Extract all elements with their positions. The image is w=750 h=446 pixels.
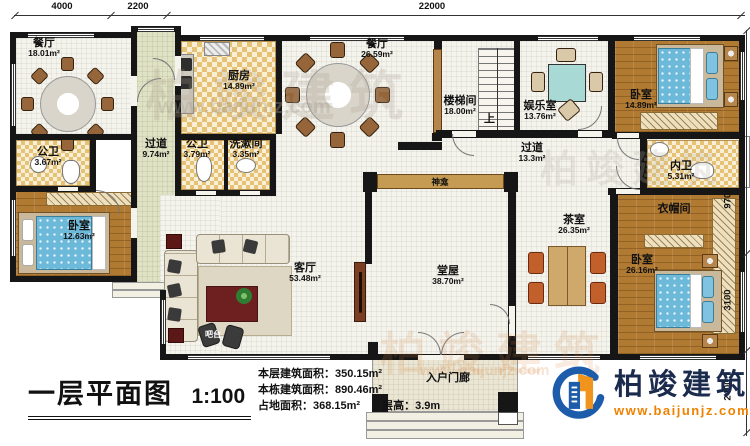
wall [175, 190, 276, 196]
stat-row: 占地面积：368.15m²层高：3.9m [258, 398, 440, 414]
wall [434, 35, 442, 49]
window [200, 36, 264, 41]
porch-pillar [498, 392, 518, 412]
sofa-cushion [167, 259, 182, 274]
room-label-livingroom: 客厅53.48m² [289, 262, 321, 284]
bed-duvet [690, 48, 704, 104]
doorway [578, 131, 602, 137]
toilet-icon [196, 156, 212, 182]
room-area: 5.31m² [668, 172, 695, 182]
room-area: 26.35m² [558, 226, 590, 236]
dimension-label: 3100 [723, 289, 734, 310]
logo: 柏竣建筑 www.baijunjz.com [552, 366, 750, 422]
room-area: 3.67m² [35, 158, 62, 168]
watermark-text: 柏竣建筑 [145, 52, 417, 131]
sink-icon [236, 158, 256, 173]
bed-pillow [702, 276, 714, 298]
room-label-bath-2: 公卫3.79m² [184, 138, 211, 160]
chair [330, 132, 345, 148]
chair [61, 57, 74, 71]
doorway [240, 191, 260, 195]
stat-value: 890.46m² [335, 384, 382, 396]
dining-table-1 [40, 76, 96, 132]
bed-duvet [690, 274, 702, 328]
stat-value: 368.15m² [313, 400, 360, 412]
logo-icon [552, 366, 608, 422]
side-table [168, 328, 184, 343]
stat-label: 本层建筑面积： [258, 368, 335, 380]
room-label-corridor-1: 过道9.74m² [143, 138, 170, 160]
nightstand [724, 46, 738, 61]
wall [16, 134, 131, 140]
window [634, 36, 700, 41]
tv-cabinet [354, 262, 366, 322]
wall [398, 142, 442, 150]
stat-value: 350.15m² [335, 368, 382, 380]
closet-cloakroom-horizontal [644, 234, 704, 248]
stairs-up-label: 上 [484, 110, 495, 126]
wall [363, 172, 377, 192]
stat-row: 本层建筑面积：350.15m² [258, 366, 440, 382]
room-label-kitchen: 厨房14.89m² [223, 70, 255, 92]
dimension-label: 4000 [51, 1, 72, 12]
wall [514, 41, 520, 133]
room-area: 3.79m² [184, 150, 211, 160]
room-area: 3.35m² [230, 150, 263, 160]
logo-website: www.baijunjz.com [614, 403, 750, 418]
floor-plan: 柏竣建筑 www.baijunjz.com 柏竣建筑 柏竣建筑 www.baij… [0, 0, 750, 446]
dimension-label: 9700 [723, 187, 734, 208]
dimension-label: 22000 [419, 1, 445, 12]
room-area: 26.59m² [361, 50, 393, 60]
plant-icon [236, 288, 252, 304]
room-label-gameroom: 娱乐室13.76m² [524, 100, 557, 122]
bed-pillow [702, 301, 714, 323]
window [161, 300, 166, 344]
page-title: 一层平面图 [28, 379, 173, 409]
room-label-bedroom-1: 卧室12.63m² [63, 220, 95, 242]
bed-pillow [706, 78, 718, 100]
chair [590, 282, 606, 304]
bar-label: 吧台 [205, 329, 221, 340]
nightstand [724, 92, 738, 107]
room-label-cloakroom: 衣帽间 [658, 203, 691, 215]
chair [590, 252, 606, 274]
wall [368, 342, 378, 354]
sofa-cushion [167, 283, 182, 298]
room-label-stairwell: 楼梯间18.00m² [444, 95, 477, 117]
room-area: 53.48m² [289, 274, 321, 284]
window [740, 52, 745, 100]
closet-bedroom-tr [640, 112, 718, 130]
doorway [196, 191, 216, 195]
room-area: 38.70m² [432, 277, 464, 287]
chair [531, 72, 545, 92]
wall [365, 192, 372, 264]
room-area: 12.63m² [63, 232, 95, 242]
doorway [131, 208, 137, 238]
doorway [58, 187, 78, 191]
toilet-icon [62, 160, 80, 184]
dimension-label: 2200 [127, 1, 148, 12]
window [138, 27, 174, 32]
pillar-base [498, 412, 518, 425]
window [538, 36, 598, 41]
watermark-text: www.baijunjz.com [158, 96, 331, 119]
sofa-cushion [211, 239, 226, 254]
stats-block: 本层建筑面积：350.15m² 本栋建筑面积：890.46m² 占地面积：368… [258, 366, 440, 414]
room-label-bedroom-br: 卧室26.16m² [626, 254, 658, 276]
game-table [548, 64, 586, 102]
room-label-dining-1: 餐厅18.01m² [28, 37, 60, 59]
side-table [166, 234, 182, 249]
room-label-dining-2: 餐厅26.59m² [361, 38, 393, 60]
sofa-cushion [167, 307, 182, 322]
title-block: 一层平面图 1:100 [28, 372, 251, 420]
room-area: 26.16m² [626, 266, 658, 276]
room-area: 14.89m² [625, 101, 657, 111]
chair [528, 252, 544, 274]
room-area: 13.3m² [519, 154, 546, 164]
wall [504, 172, 518, 192]
room-label-bedroom-tr: 卧室14.89m² [625, 89, 657, 111]
wall [224, 140, 228, 190]
bed-pillow [22, 219, 34, 241]
bed-pillow [706, 52, 718, 74]
room-label-washroom: 洗漱间3.35m² [230, 138, 263, 160]
room-name: 衣帽间 [658, 203, 691, 215]
watermark-text: 柏竣建筑 [540, 138, 724, 193]
wall [270, 134, 276, 196]
room-area: 9.74m² [143, 150, 170, 160]
logo-company: 柏竣建筑 [614, 370, 750, 400]
wall [90, 140, 96, 190]
room-label-corridor-2: 过道13.3m² [519, 142, 546, 164]
room-area: 13.76m² [524, 112, 557, 122]
stat-label: 层高： [382, 400, 415, 412]
room-area: 18.01m² [28, 49, 60, 59]
window [188, 355, 330, 360]
wardrobe-bedroom1 [46, 192, 132, 206]
bed-pillow [22, 244, 34, 266]
nightstand [702, 334, 718, 348]
stat-row: 本栋建筑面积：890.46m² [258, 382, 440, 398]
chair [101, 97, 114, 111]
stair-rail [497, 48, 498, 132]
wall [608, 35, 615, 135]
chair [21, 97, 34, 111]
room-label-mainhall: 堂屋38.70m² [432, 265, 464, 287]
room-label-innerbath: 内卫5.31m² [668, 160, 695, 182]
room-area: 18.00m² [444, 107, 477, 117]
room-area: 14.89m² [223, 82, 255, 92]
nightstand [702, 254, 718, 268]
scale-label: 1:100 [191, 385, 245, 408]
stat-label: 本栋建筑面积： [258, 384, 335, 396]
chair [528, 282, 544, 304]
room-label-bath-1: 公卫3.67m² [35, 146, 62, 168]
porch-step [366, 430, 524, 439]
stat-value: 3.9m [415, 400, 440, 412]
window [11, 200, 16, 256]
chair [556, 48, 576, 62]
tea-table [548, 246, 586, 306]
stat-label: 占地面积： [258, 400, 313, 412]
shrine-label: 神龛 [431, 176, 448, 188]
window [11, 64, 16, 126]
wall [10, 276, 137, 282]
wall [16, 186, 96, 192]
dimension-line [14, 15, 745, 16]
chair [589, 72, 603, 92]
window [740, 272, 745, 332]
wood-screen [433, 49, 442, 133]
window [640, 355, 716, 360]
wall [131, 26, 137, 282]
room-label-tearoom: 茶室26.35m² [558, 214, 590, 236]
